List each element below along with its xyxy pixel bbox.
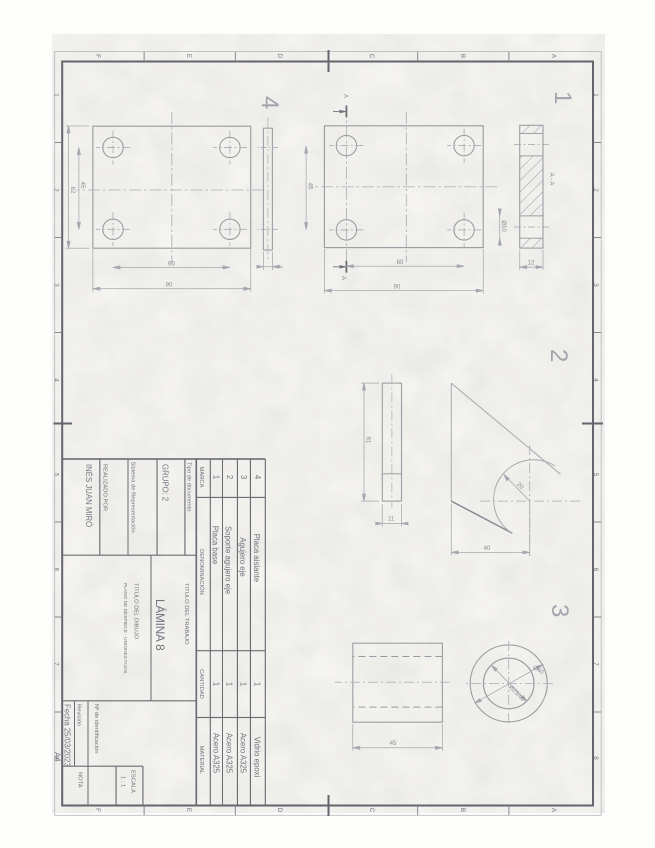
svg-text:F: F — [94, 54, 101, 58]
svg-text:C: C — [368, 54, 375, 59]
svg-text:F: F — [94, 808, 101, 812]
svg-text:1: 1 — [212, 682, 221, 686]
svg-text:Acero A325: Acero A325 — [225, 733, 234, 774]
svg-text:1: 1 — [239, 682, 248, 686]
svg-text:A: A — [342, 94, 348, 98]
svg-text:2: 2 — [225, 475, 234, 479]
svg-text:1: 1 — [253, 682, 262, 686]
svg-text:Revisión: Revisión — [76, 704, 82, 726]
svg-text:12: 12 — [528, 261, 535, 267]
svg-text:E: E — [185, 808, 192, 812]
svg-text:MARCA: MARCA — [198, 467, 204, 488]
svg-text:3: 3 — [592, 283, 599, 287]
svg-text:B: B — [459, 808, 466, 812]
svg-text:60: 60 — [397, 260, 404, 266]
svg-text:7: 7 — [53, 662, 60, 666]
svg-text:8: 8 — [592, 756, 599, 760]
svg-text:11: 11 — [388, 517, 395, 523]
svg-text:Tipo de documento: Tipo de documento — [186, 462, 192, 511]
svg-text:Agujero eje: Agujero eje — [238, 537, 247, 576]
svg-text:1 : 1: 1 : 1 — [120, 776, 126, 787]
svg-text:DENOMINACIÓN: DENOMINACIÓN — [198, 549, 205, 595]
svg-text:61: 61 — [365, 437, 371, 444]
svg-text:40: 40 — [484, 546, 491, 552]
svg-text:1: 1 — [549, 91, 576, 104]
svg-text:Soporte agujero eje: Soporte agujero eje — [224, 526, 233, 594]
svg-text:45: 45 — [390, 741, 397, 747]
svg-text:GRUPO: 2: GRUPO: 2 — [161, 464, 170, 501]
svg-text:Placa base: Placa base — [211, 526, 220, 565]
svg-text:1: 1 — [225, 682, 234, 686]
svg-text:LÁMINA 8: LÁMINA 8 — [153, 599, 167, 651]
svg-text:D: D — [276, 54, 283, 59]
svg-text:Sistema de Representación: Sistema de Representación — [130, 462, 136, 533]
svg-text:6: 6 — [53, 568, 60, 572]
svg-text:E: E — [185, 54, 192, 58]
svg-text:3: 3 — [53, 283, 60, 287]
svg-text:6: 6 — [592, 568, 599, 572]
svg-text:A: A — [340, 276, 346, 280]
svg-text:4: 4 — [592, 378, 599, 382]
svg-text:1: 1 — [212, 475, 221, 479]
svg-text:A - A: A - A — [548, 173, 554, 186]
svg-text:B: B — [459, 54, 466, 58]
svg-text:62: 62 — [69, 187, 75, 194]
svg-text:Fecha 25/03/2023: Fecha 25/03/2023 — [63, 704, 72, 767]
svg-text:4: 4 — [253, 475, 262, 480]
svg-text:60: 60 — [168, 261, 175, 267]
svg-text:45: 45 — [79, 182, 85, 189]
svg-text:2: 2 — [592, 188, 599, 192]
svg-text:3: 3 — [239, 475, 248, 479]
svg-text:7: 7 — [592, 662, 599, 666]
svg-text:D: D — [276, 808, 283, 813]
svg-text:C: C — [368, 808, 375, 813]
svg-text:90: 90 — [394, 284, 401, 290]
svg-text:REALIZADO POR: REALIZADO POR — [102, 464, 108, 511]
svg-text:2: 2 — [545, 349, 572, 362]
svg-text:A4: A4 — [53, 752, 62, 762]
svg-text:NOTA: NOTA — [77, 772, 83, 788]
svg-text:Nº de identificación: Nº de identificación — [93, 704, 100, 754]
svg-text:90: 90 — [166, 283, 173, 289]
svg-text:4: 4 — [53, 378, 60, 382]
svg-text:Placa aislante: Placa aislante — [252, 534, 261, 583]
svg-text:5: 5 — [53, 473, 60, 477]
svg-text:Acero A325: Acero A325 — [212, 733, 221, 774]
svg-text:2: 2 — [53, 188, 60, 192]
svg-text:1: 1 — [53, 93, 60, 97]
svg-text:1: 1 — [592, 93, 599, 97]
svg-text:45: 45 — [307, 183, 313, 190]
svg-text:INÉS JUAN MIRÓ: INÉS JUAN MIRÓ — [84, 464, 93, 527]
svg-text:TITULO DEL TRABAJO: TITULO DEL TRABAJO — [183, 583, 189, 645]
svg-text:Acero A325: Acero A325 — [239, 733, 248, 774]
svg-text:MATERIAL: MATERIAL — [198, 746, 204, 775]
svg-text:3: 3 — [546, 604, 573, 617]
svg-text:Vidrio epoxi: Vidrio epoxi — [253, 737, 262, 778]
svg-text:4: 4 — [256, 96, 283, 109]
svg-text:5: 5 — [592, 473, 599, 477]
svg-text:Ø10: Ø10 — [500, 220, 506, 232]
svg-text:TITULO DEL DIBUJO: TITULO DEL DIBUJO — [133, 583, 139, 640]
svg-text:ESCALA: ESCALA — [130, 770, 136, 793]
svg-text:CANTIDAD: CANTIDAD — [198, 669, 204, 699]
